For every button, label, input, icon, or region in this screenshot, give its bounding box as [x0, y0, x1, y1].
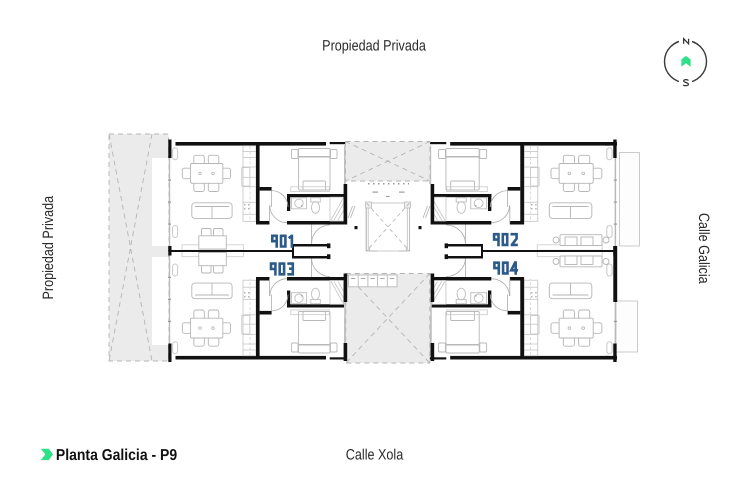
svg-text:Planta Galicia - P9: Planta Galicia - P9	[56, 447, 177, 464]
svg-text:Calle Xola: Calle Xola	[346, 446, 404, 463]
svg-text:Propiedad Privada: Propiedad Privada	[40, 195, 57, 299]
svg-text:Calle Galicia: Calle Galicia	[695, 213, 712, 284]
svg-text:Propiedad Privada: Propiedad Privada	[322, 38, 426, 55]
